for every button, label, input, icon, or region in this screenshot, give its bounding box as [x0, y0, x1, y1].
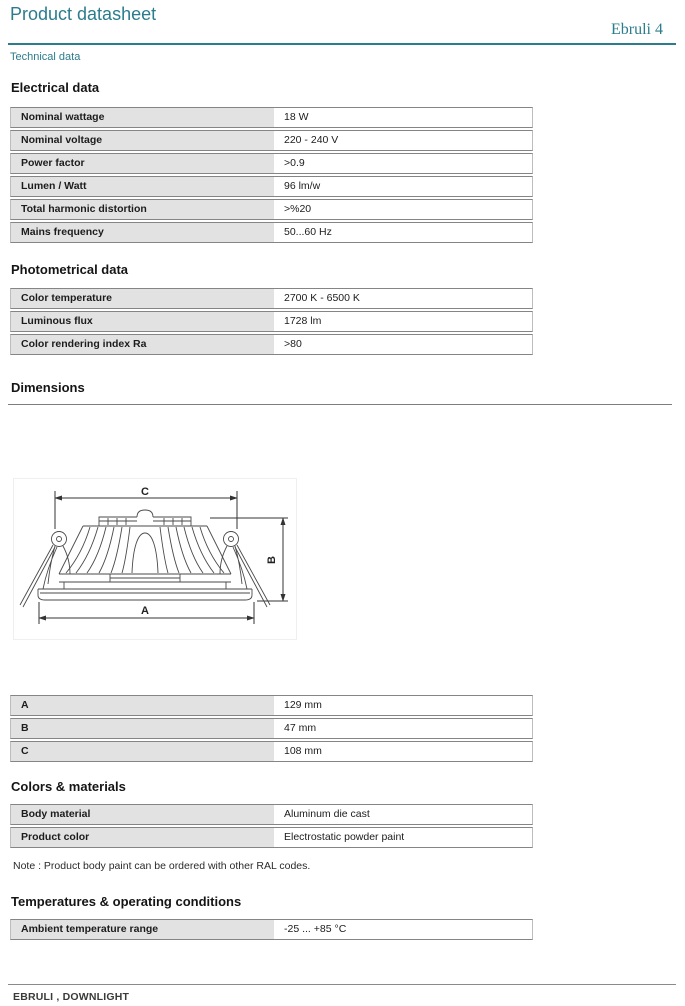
- temperatures-table: Ambient temperature range -25 ... +85 °C: [10, 919, 533, 942]
- row-label: Luminous flux: [11, 312, 274, 331]
- dimension-drawing: C B A: [13, 478, 297, 640]
- product-name: Ebruli 4: [611, 21, 663, 39]
- row-label: Nominal voltage: [11, 131, 274, 150]
- electrical-table: Nominal wattage 18 W Nominal voltage 220…: [10, 107, 533, 245]
- row-value: 18 W: [274, 108, 532, 127]
- footer-product-name: EBRULI , DOWNLIGHT: [13, 991, 129, 1003]
- row-label: B: [11, 719, 274, 738]
- row-value: >%20: [274, 200, 532, 219]
- technical-data-subtitle: Technical data: [10, 51, 80, 63]
- datasheet-page: Product datasheet Ebruli 4 Technical dat…: [0, 0, 685, 1006]
- row-value: Aluminum die cast: [274, 805, 532, 824]
- dimension-label-a: A: [141, 605, 149, 617]
- photometrical-heading: Photometrical data: [11, 262, 128, 277]
- dimension-label-c: C: [141, 486, 149, 498]
- row-value: 2700 K - 6500 K: [274, 289, 532, 308]
- table-row: Mains frequency 50...60 Hz: [10, 222, 533, 243]
- table-row: Lumen / Watt 96 lm/w: [10, 176, 533, 197]
- row-label: Mains frequency: [11, 223, 274, 242]
- table-row: Nominal wattage 18 W: [10, 107, 533, 128]
- row-value: 50...60 Hz: [274, 223, 532, 242]
- colors-materials-heading: Colors & materials: [11, 779, 126, 794]
- row-value: 96 lm/w: [274, 177, 532, 196]
- table-row: Body material Aluminum die cast: [10, 804, 533, 825]
- downlight-technical-drawing-image: C B A: [14, 479, 296, 639]
- dimensions-divider: [8, 404, 672, 405]
- dimensions-table: A 129 mm B 47 mm C 108 mm: [10, 695, 533, 764]
- ral-codes-note: Note : Product body paint can be ordered…: [13, 860, 310, 872]
- header-divider: [8, 43, 676, 45]
- table-row: B 47 mm: [10, 718, 533, 739]
- photometrical-table: Color temperature 2700 K - 6500 K Lumino…: [10, 288, 533, 357]
- dimensions-heading: Dimensions: [11, 380, 85, 395]
- row-value: >0.9: [274, 154, 532, 173]
- table-row: Nominal voltage 220 - 240 V: [10, 130, 533, 151]
- row-label: Ambient temperature range: [11, 920, 274, 939]
- table-row: Total harmonic distortion >%20: [10, 199, 533, 220]
- table-row: Power factor >0.9: [10, 153, 533, 174]
- table-row: Luminous flux 1728 lm: [10, 311, 533, 332]
- row-label: Total harmonic distortion: [11, 200, 274, 219]
- colors-materials-table: Body material Aluminum die cast Product …: [10, 804, 533, 850]
- footer-divider: [8, 984, 676, 985]
- row-value: 220 - 240 V: [274, 131, 532, 150]
- table-row: Ambient temperature range -25 ... +85 °C: [10, 919, 533, 940]
- row-value: -25 ... +85 °C: [274, 920, 532, 939]
- row-label: Nominal wattage: [11, 108, 274, 127]
- table-row: Product color Electrostatic powder paint: [10, 827, 533, 848]
- table-row: Color temperature 2700 K - 6500 K: [10, 288, 533, 309]
- row-value: Electrostatic powder paint: [274, 828, 532, 847]
- table-row: Color rendering index Ra >80: [10, 334, 533, 355]
- row-value: 1728 lm: [274, 312, 532, 331]
- row-value: 129 mm: [274, 696, 532, 715]
- temperatures-heading: Temperatures & operating conditions: [11, 894, 241, 909]
- electrical-heading: Electrical data: [11, 80, 99, 95]
- row-label: A: [11, 696, 274, 715]
- row-value: >80: [274, 335, 532, 354]
- table-row: A 129 mm: [10, 695, 533, 716]
- row-label: Lumen / Watt: [11, 177, 274, 196]
- row-label: Power factor: [11, 154, 274, 173]
- page-title: Product datasheet: [10, 4, 156, 25]
- row-label: Body material: [11, 805, 274, 824]
- row-value: 108 mm: [274, 742, 532, 761]
- row-label: Color rendering index Ra: [11, 335, 274, 354]
- row-label: Color temperature: [11, 289, 274, 308]
- dimension-label-b: B: [266, 556, 278, 564]
- row-value: 47 mm: [274, 719, 532, 738]
- row-label: Product color: [11, 828, 274, 847]
- row-label: C: [11, 742, 274, 761]
- table-row: C 108 mm: [10, 741, 533, 762]
